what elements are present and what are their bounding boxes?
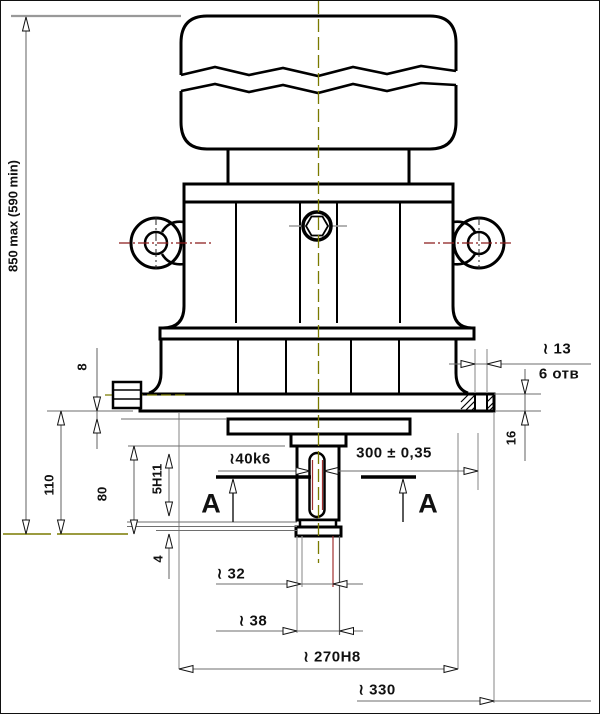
dim-flange-outer-diameter: ≀ 330 (358, 683, 395, 698)
dim-overall-height: 850 max (590 min) (7, 160, 20, 272)
dim-dia-38: ≀ 38 (239, 614, 267, 629)
dim-110: 110 (43, 475, 56, 496)
extension-lines (11, 16, 494, 703)
section-label-right: A (418, 491, 438, 518)
dim-8: 8 (76, 363, 89, 370)
flange-side-bolt (105, 382, 189, 408)
dim-flange-thickness: 16 (505, 431, 518, 445)
keyway-slot (310, 453, 325, 517)
flange-section-hatching (461, 395, 494, 410)
dim-dia-32: ≀ 32 (217, 567, 245, 582)
dim-hole-diameter: ≀ 13 (543, 342, 571, 357)
dim-shaft-diameter: ≀40k6 (229, 452, 271, 467)
drawing-linework (1, 1, 600, 714)
dim-4: 4 (152, 555, 165, 562)
dimension-arrowheads (23, 17, 529, 705)
dim-spigot-diameter: ≀ 270H8 (303, 650, 361, 665)
dimension-lines (26, 17, 591, 701)
section-label-left: A (201, 491, 221, 518)
dim-80: 80 (96, 487, 109, 501)
engineering-drawing: 850 max (590 min) 8 110 80 5H11 4 ≀40k6 … (0, 0, 600, 714)
dim-shaft-tolerance: 300 ± 0,35 (356, 446, 432, 461)
dim-keyway-fit: 5H11 (151, 464, 164, 494)
dim-hole-count: 6 отв (539, 367, 579, 382)
